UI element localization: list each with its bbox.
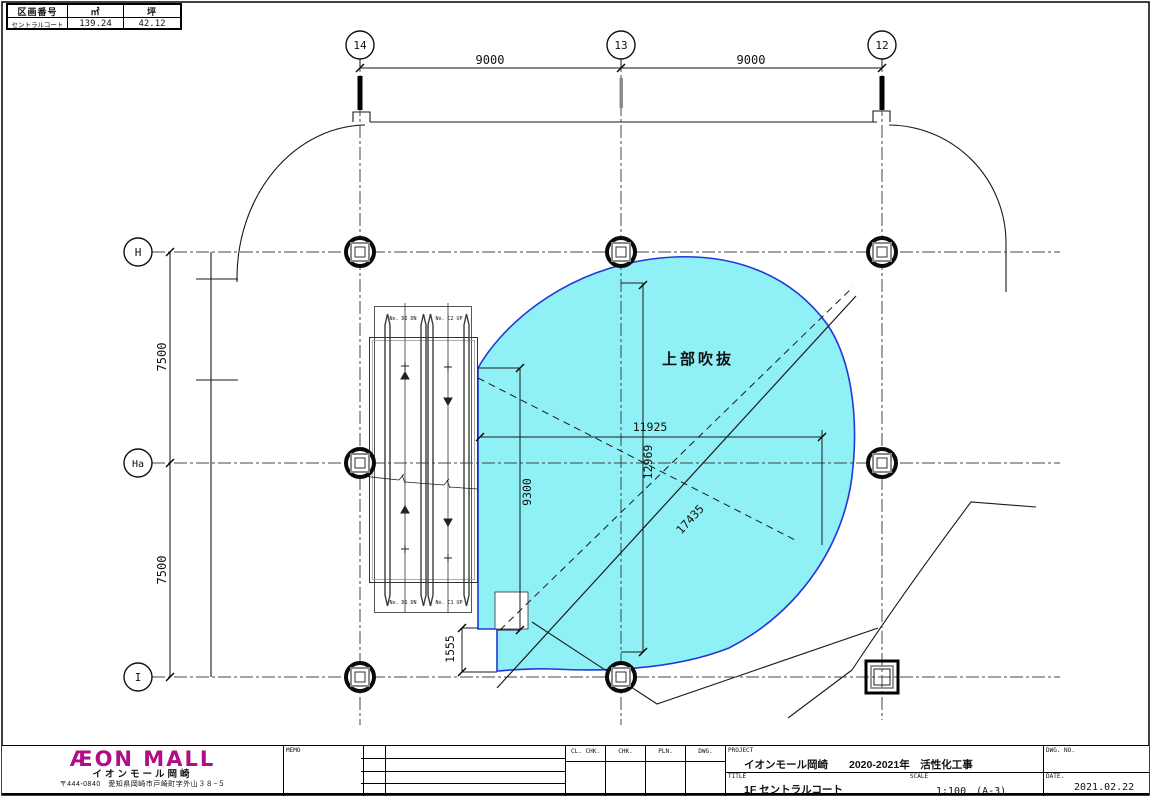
revision-divider-2 — [361, 771, 565, 772]
bubble-H-label: H — [135, 246, 142, 259]
column-13-H — [607, 238, 635, 266]
area-table-header-sqm: ㎡ — [68, 5, 124, 18]
pln-cell: PLN. — [645, 746, 685, 796]
bubble-13: 13 — [607, 31, 635, 59]
clchk-label: CL. CHK. — [566, 748, 605, 755]
chk-label: CHK. — [606, 748, 645, 755]
dwg-cell: DWG. — [685, 746, 725, 796]
area-table-header-tsubo: 坪 — [124, 5, 180, 18]
project-label: PROJECT — [728, 747, 753, 754]
scale-value: 1:100 (A-3) — [936, 782, 1006, 797]
clchk-cell: CL. CHK. — [565, 746, 605, 796]
column-14-H — [346, 238, 374, 266]
section-markers — [358, 76, 885, 110]
bubble-14-label: 14 — [353, 39, 367, 52]
date-value: 2021.02.22 — [1074, 782, 1134, 793]
title-block: ÆON MALL イオンモール岡崎 〒444-0840 愛知県岡崎市戸崎町字外山… — [2, 745, 1149, 795]
area-table-tsubo-value: 42.12 — [124, 18, 180, 30]
memo-label: MEMO — [286, 747, 300, 754]
company-name: イオンモール岡崎 — [2, 769, 283, 780]
revision-divider-1 — [361, 758, 565, 759]
dim-line-1555 — [462, 628, 497, 672]
floor-plan-canvas: No. D2 DN No. C2 UP No. D1 DN No. C1 UP … — [0, 0, 1152, 797]
dwg-no-label: DWG. NO. — [1046, 747, 1075, 754]
scale-label: SCALE — [910, 773, 928, 780]
dim-7500-upper: 7500 — [155, 343, 169, 372]
escalator-break-line — [362, 474, 477, 489]
project-name: イオンモール岡崎 2020-2021年 活性化工事 — [744, 757, 973, 772]
dim-11925: 11925 — [633, 420, 668, 434]
column-12-Ha — [868, 449, 896, 477]
escalator-label-c2: No. C2 UP — [435, 316, 462, 322]
company-cell: ÆON MALL イオンモール岡崎 〒444-0840 愛知県岡崎市戸崎町字外山… — [2, 746, 283, 796]
drawing-sheet: No. D2 DN No. C2 UP No. D1 DN No. C1 UP … — [0, 0, 1152, 797]
dim-9000-right: 9000 — [737, 53, 766, 67]
column-14-Ha — [346, 449, 374, 477]
drawing-title: 1F セントラルコート — [744, 782, 843, 797]
bubble-I-label: I — [135, 671, 142, 684]
sign-header-divider — [565, 761, 725, 762]
company-address: 〒444-0840 愛知県岡崎市戸崎町字外山３８−５ — [2, 780, 283, 789]
area-table: 区画番号 ㎡ 坪 セントラルコート 139.24 42.12 — [6, 3, 182, 30]
dim-9000-left: 9000 — [476, 53, 505, 67]
column-14-I — [346, 663, 374, 691]
project-title-cell: PROJECT イオンモール岡崎 2020-2021年 活性化工事 TITLE … — [725, 746, 1043, 796]
bubble-13-label: 13 — [614, 39, 627, 52]
area-table-sqm-value: 139.24 — [68, 18, 124, 30]
bubble-12: 12 — [868, 31, 896, 59]
void-shape — [478, 257, 855, 671]
dwg-label: DWG. — [686, 748, 725, 755]
bubble-12-label: 12 — [875, 39, 888, 52]
column-13-I — [607, 663, 635, 691]
date-label: DATE. — [1046, 773, 1064, 780]
dim-7500-lower: 7500 — [155, 556, 169, 585]
bubble-14: 14 — [346, 31, 374, 59]
escalator-rails — [385, 314, 469, 606]
area-table-room-name: セントラルコート — [8, 18, 68, 30]
bubble-Ha: Ha — [124, 449, 152, 477]
bubble-H: H — [124, 238, 152, 266]
dim-1555: 1555 — [443, 635, 457, 663]
memo-cell: MEMO — [283, 746, 363, 796]
title-label: TITLE — [728, 773, 746, 780]
chk-cell: CHK. — [605, 746, 645, 796]
revision-divider-3 — [361, 783, 565, 784]
aeon-mall-logo: ÆON MALL — [2, 749, 283, 769]
column-12-H — [868, 238, 896, 266]
void-notch — [495, 592, 528, 629]
dim-9300: 9300 — [520, 478, 534, 506]
escalator-label-d2: No. D2 DN — [389, 316, 416, 322]
escalator-label-d1: No. D1 DN — [389, 600, 416, 606]
pln-label: PLN. — [646, 748, 685, 755]
bubble-Ha-label: Ha — [132, 459, 144, 470]
bubble-I: I — [124, 663, 152, 691]
escalator-label-c1: No. C1 UP — [435, 600, 462, 606]
dwgno-date-cell: DWG. NO. DATE. 2021.02.22 — [1043, 746, 1149, 796]
void-label: 上部吹抜 — [662, 350, 734, 368]
escalator-block: No. D2 DN No. C2 UP No. D1 DN No. C1 UP — [362, 303, 478, 613]
dim-12969: 12969 — [641, 445, 655, 480]
area-table-header-section: 区画番号 — [8, 5, 68, 18]
